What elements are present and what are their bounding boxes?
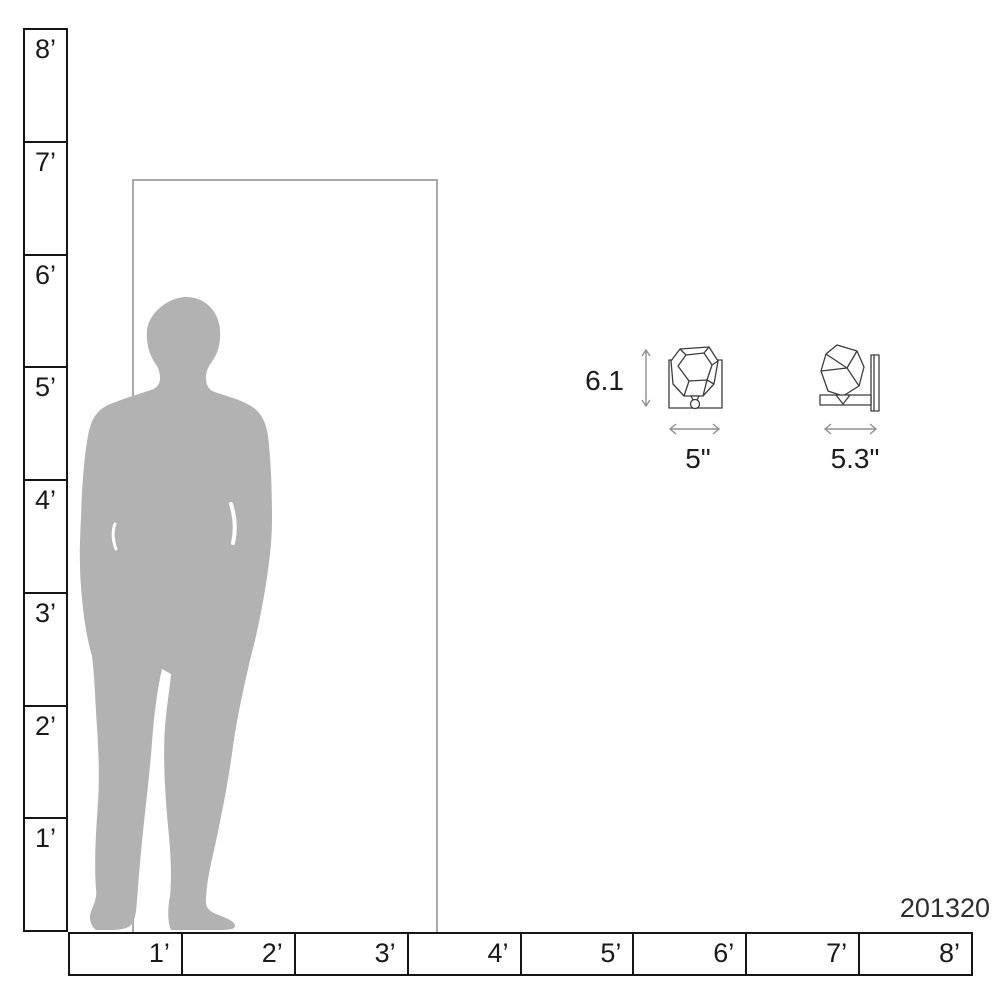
ruler-tick-label: 8’ (860, 934, 971, 974)
ruler-tick-label: 6’ (634, 934, 747, 974)
ruler-tick-label: 2’ (183, 934, 296, 974)
height-dimension-label: 6.1 (544, 366, 624, 396)
ruler-tick-label: 8’ (25, 30, 66, 143)
ruler-tick-label: 3’ (25, 594, 66, 707)
ruler-tick-label: 7’ (25, 143, 66, 256)
sconce-side-drawing (820, 345, 879, 411)
sconce-side-wallplate (871, 355, 879, 411)
scale-diagram: 8’ 7’ 6’ 5’ 4’ 3’ 2’ 1’ 1’ 2’ 3’ 4’ 5’ 6… (0, 0, 1000, 1000)
ruler-tick-label: 2’ (25, 707, 66, 820)
ruler-tick-label: 4’ (409, 934, 522, 974)
front-width-dimension-label: 5" (658, 444, 738, 474)
sconce-front-drawing (669, 347, 722, 409)
diagram-canvas (0, 0, 1000, 1000)
horizontal-ruler: 1’ 2’ 3’ 4’ 5’ 6’ 7’ 8’ (68, 932, 973, 976)
ruler-tick-label: 7’ (747, 934, 860, 974)
product-number: 201320 (900, 894, 990, 922)
ruler-tick-label: 5’ (522, 934, 635, 974)
person-silhouette-shape (80, 297, 272, 930)
ruler-tick-label: 5’ (25, 368, 66, 481)
ruler-tick-label: 1’ (25, 819, 66, 930)
side-width-dimension-label: 5.3" (815, 444, 895, 474)
vertical-ruler: 8’ 7’ 6’ 5’ 4’ 3’ 2’ 1’ (23, 28, 68, 932)
ruler-tick-label: 3’ (296, 934, 409, 974)
sconce-front-finial (691, 400, 700, 409)
ruler-tick-label: 6’ (25, 256, 66, 369)
ruler-tick-label: 4’ (25, 481, 66, 594)
ruler-tick-label: 1’ (70, 934, 183, 974)
person-silhouette (80, 297, 272, 930)
